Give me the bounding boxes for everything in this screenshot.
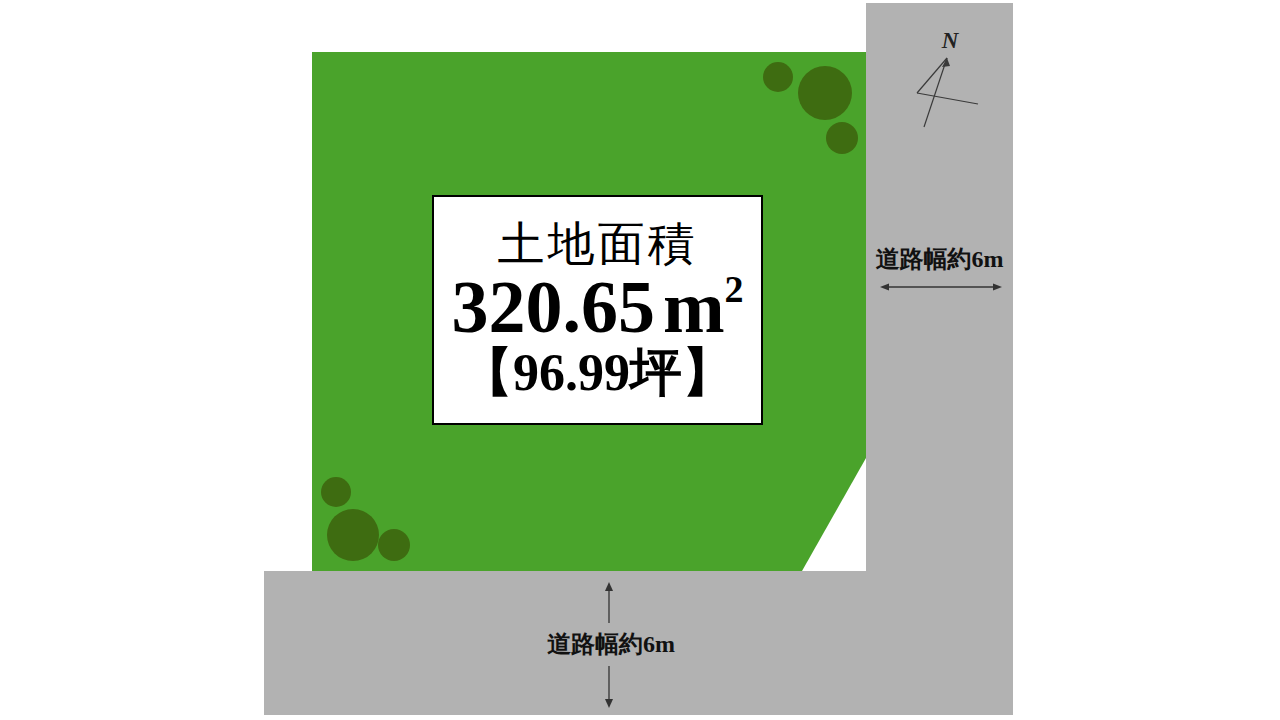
tree-icon	[321, 477, 351, 507]
north-arrow-icon	[905, 30, 995, 135]
land-area-value: 320.65	[451, 266, 655, 348]
land-area-title: 土地面積	[498, 219, 698, 270]
dimension-line-right-road	[880, 280, 1002, 294]
land-area-unit-sup: 2	[725, 268, 744, 310]
land-area-unit: m	[663, 266, 725, 348]
road-width-label-right: 道路幅約6m	[866, 246, 1013, 272]
land-area-value-line: 320.65m2	[451, 270, 743, 345]
tree-icon	[378, 529, 410, 561]
site-plan-canvas: 土地面積 320.65m2 【96.99坪】 道路幅約6m 道路幅約6m N	[0, 0, 1280, 720]
tree-icon	[798, 66, 852, 120]
tree-icon	[826, 122, 858, 154]
land-area-box: 土地面積 320.65m2 【96.99坪】	[432, 195, 763, 425]
dimension-line-bottom-road	[601, 582, 617, 708]
tree-icon	[763, 62, 793, 92]
land-area-tsubo: 【96.99坪】	[461, 345, 734, 401]
tree-icon	[327, 509, 379, 561]
